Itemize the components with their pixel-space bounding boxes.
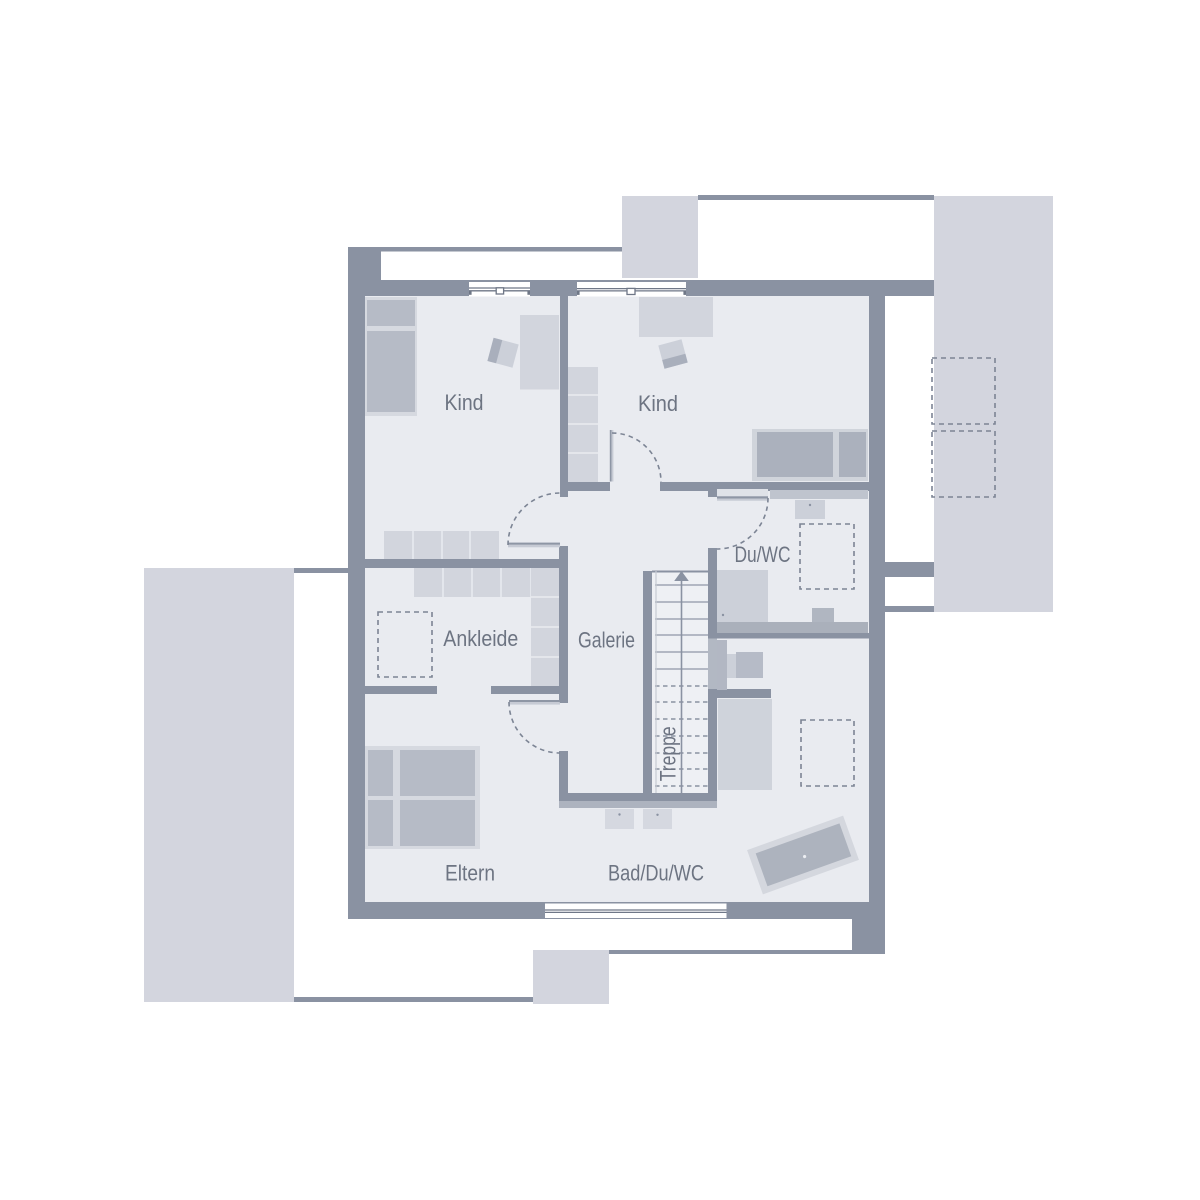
svg-text:Ankleide: Ankleide	[443, 626, 518, 651]
svg-text:Galerie: Galerie	[578, 628, 635, 653]
svg-text:Treppe: Treppe	[656, 726, 681, 781]
svg-text:Du/WC: Du/WC	[735, 542, 791, 567]
svg-text:Eltern: Eltern	[445, 861, 495, 886]
svg-text:Bad/Du/WC: Bad/Du/WC	[608, 861, 704, 886]
svg-text:Kind: Kind	[445, 390, 484, 415]
svg-text:Kind: Kind	[638, 391, 678, 416]
